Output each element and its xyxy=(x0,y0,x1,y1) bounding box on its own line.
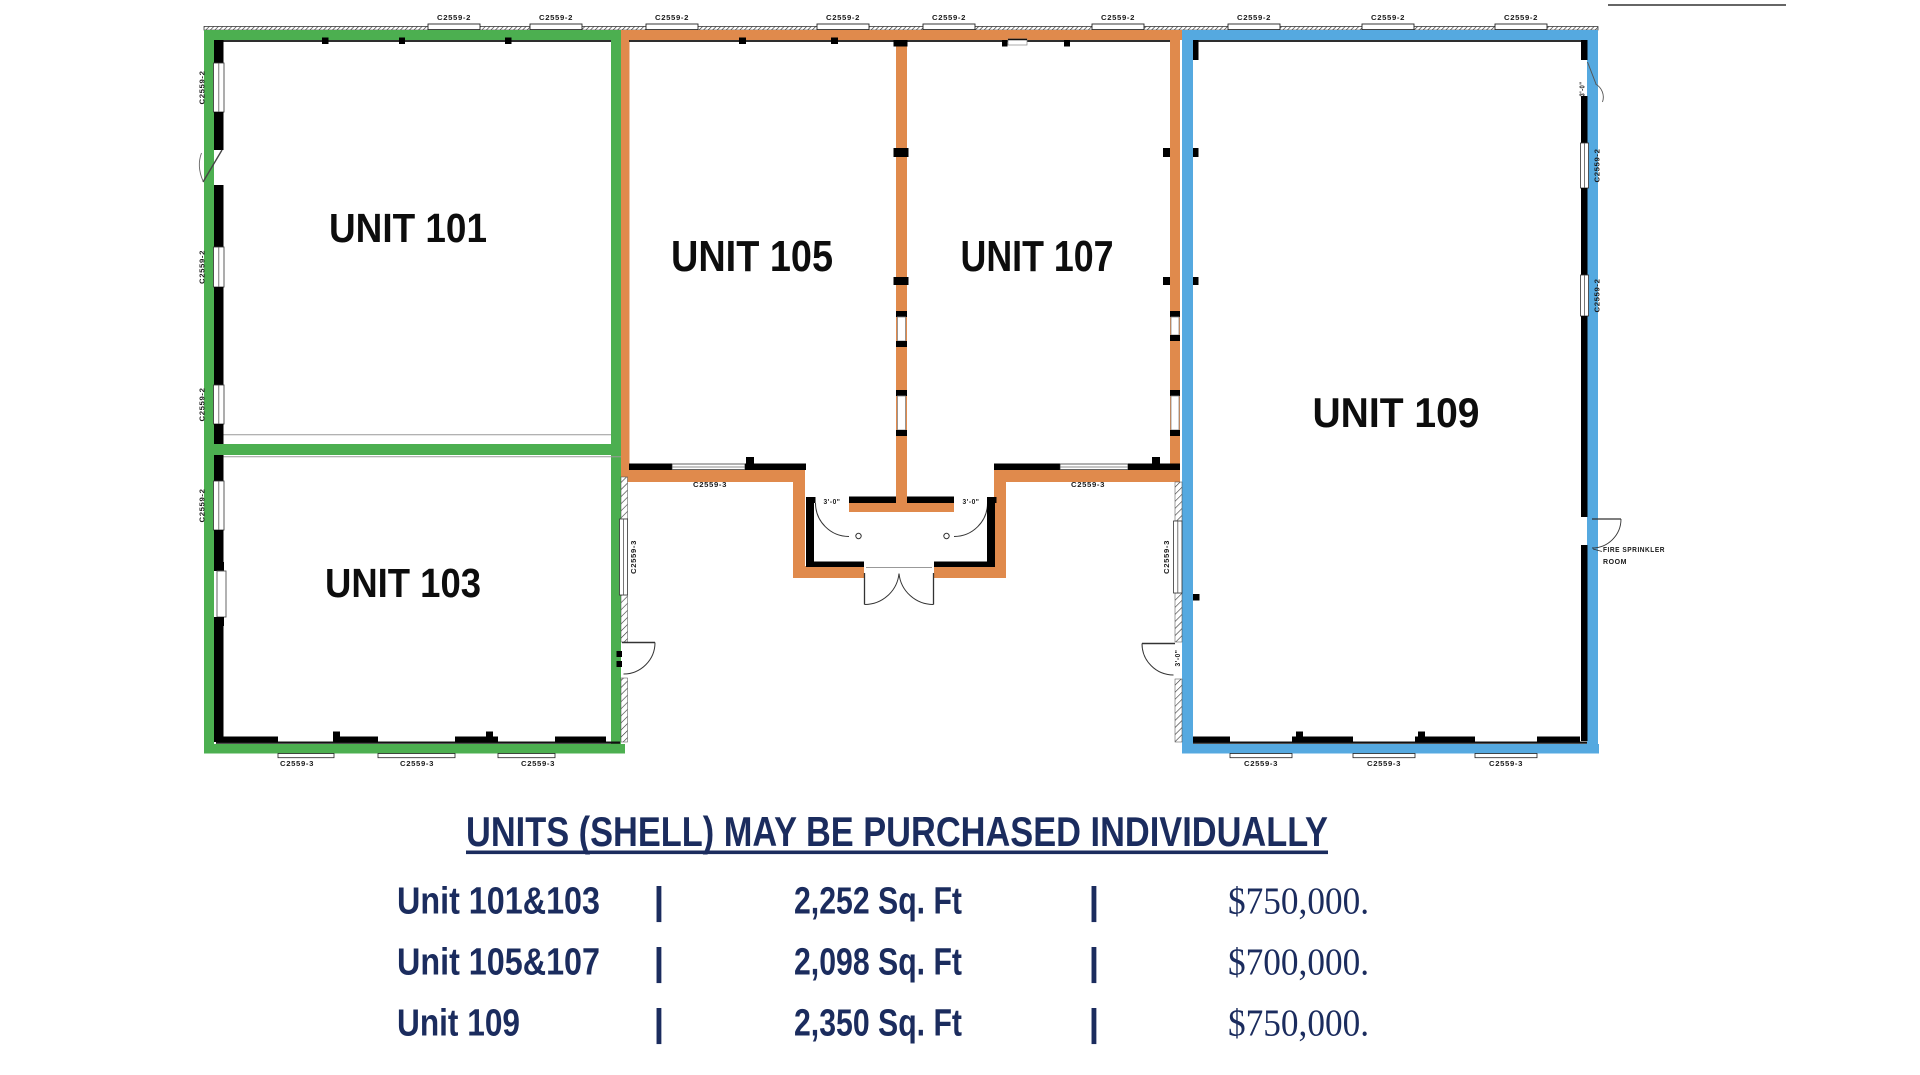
svg-text:3'-0": 3'-0" xyxy=(824,497,841,506)
svg-text:C2559-2: C2559-2 xyxy=(1593,149,1602,183)
svg-text:C2559-3: C2559-3 xyxy=(1489,759,1523,768)
svg-text:C2559-2: C2559-2 xyxy=(932,13,966,22)
svg-text:C2559-2: C2559-2 xyxy=(198,489,207,523)
svg-text:$750,000.: $750,000. xyxy=(1228,1003,1369,1045)
svg-text:3'-0": 3'-0" xyxy=(1578,82,1587,97)
svg-text:UNITS (SHELL) MAY BE PURCHASED: UNITS (SHELL) MAY BE PURCHASED INDIVIDUA… xyxy=(466,808,1328,855)
svg-text:$750,000.: $750,000. xyxy=(1228,881,1369,923)
svg-text:2,350 Sq. Ft: 2,350 Sq. Ft xyxy=(794,1003,962,1045)
svg-text:$700,000.: $700,000. xyxy=(1228,942,1369,984)
svg-text:Unit 101&103: Unit 101&103 xyxy=(397,881,600,923)
svg-text:C2559-2: C2559-2 xyxy=(1101,13,1135,22)
svg-text:C2559-2: C2559-2 xyxy=(1237,13,1271,22)
svg-text:UNIT 105: UNIT 105 xyxy=(671,232,833,281)
svg-text:C2559-3: C2559-3 xyxy=(521,759,555,768)
svg-text:C2559-3: C2559-3 xyxy=(693,480,727,489)
svg-text:C2559-3: C2559-3 xyxy=(629,540,638,574)
svg-text:C2559-3: C2559-3 xyxy=(1244,759,1278,768)
svg-text:UNIT 103: UNIT 103 xyxy=(325,560,481,606)
svg-text:UNIT 107: UNIT 107 xyxy=(961,232,1114,281)
svg-text:C2559-2: C2559-2 xyxy=(826,13,860,22)
svg-text:2,252 Sq. Ft: 2,252 Sq. Ft xyxy=(794,881,962,923)
svg-text:C2559-2: C2559-2 xyxy=(198,250,207,284)
svg-text:C2559-3: C2559-3 xyxy=(400,759,434,768)
svg-text:C2559-2: C2559-2 xyxy=(1593,279,1602,313)
svg-text:|: | xyxy=(1089,1003,1100,1045)
svg-text:C2559-3: C2559-3 xyxy=(1162,540,1171,574)
svg-text:UNIT 101: UNIT 101 xyxy=(329,205,487,251)
svg-text:UNIT 109: UNIT 109 xyxy=(1313,389,1480,436)
svg-text:|: | xyxy=(654,881,665,923)
svg-text:C2559-2: C2559-2 xyxy=(198,71,207,105)
svg-text:C2559-3: C2559-3 xyxy=(1071,480,1105,489)
svg-text:C2559-2: C2559-2 xyxy=(198,388,207,422)
svg-text:FIRE SPRINKLER: FIRE SPRINKLER xyxy=(1603,545,1665,554)
svg-text:C2559-3: C2559-3 xyxy=(1367,759,1401,768)
svg-text:C2559-2: C2559-2 xyxy=(1504,13,1538,22)
svg-text:|: | xyxy=(1089,881,1100,923)
svg-text:C2559-2: C2559-2 xyxy=(437,13,471,22)
svg-text:|: | xyxy=(654,1003,665,1045)
svg-text:Unit 105&107: Unit 105&107 xyxy=(397,942,600,984)
svg-text:3'-0": 3'-0" xyxy=(963,497,980,506)
svg-text:|: | xyxy=(654,942,665,984)
svg-text:C2559-2: C2559-2 xyxy=(539,13,573,22)
svg-text:C2559-3: C2559-3 xyxy=(280,759,314,768)
svg-text:C2559-2: C2559-2 xyxy=(655,13,689,22)
svg-text:3'-0": 3'-0" xyxy=(1173,650,1182,667)
svg-text:|: | xyxy=(1089,942,1100,984)
svg-text:C2559-2: C2559-2 xyxy=(1371,13,1405,22)
svg-text:2,098 Sq. Ft: 2,098 Sq. Ft xyxy=(794,942,962,984)
svg-text:ROOM: ROOM xyxy=(1603,557,1627,566)
svg-text:Unit 109: Unit 109 xyxy=(397,1003,520,1045)
